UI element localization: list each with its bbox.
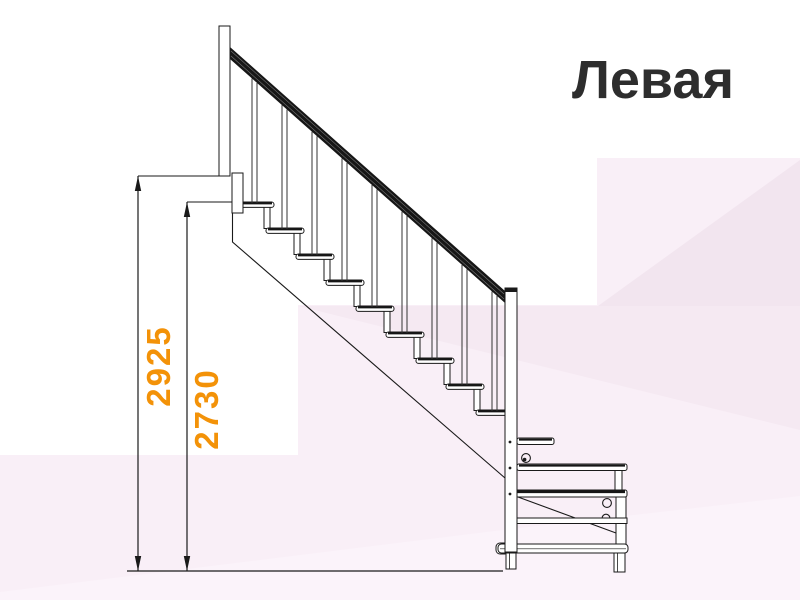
- page-title: Левая: [572, 53, 734, 107]
- background-facets: [0, 158, 800, 600]
- handrail: [230, 47, 505, 303]
- diagram-canvas: Левая 2925 2730: [0, 0, 800, 600]
- dimension-label-overall-height: 2925: [142, 296, 176, 436]
- lower-post: [505, 288, 517, 552]
- dimension-label-floor-to-top-tread: 2730: [190, 339, 224, 479]
